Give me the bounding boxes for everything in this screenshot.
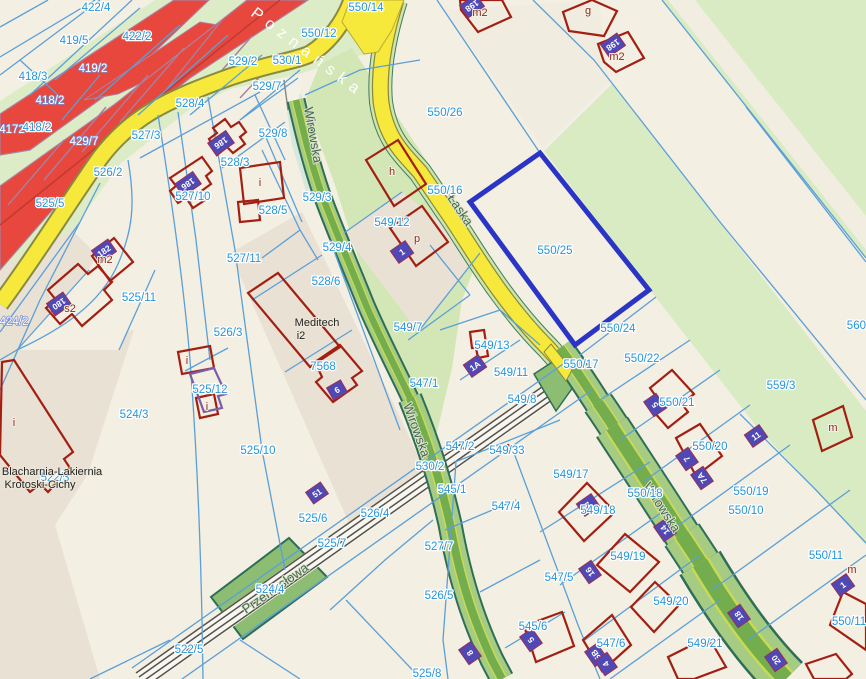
svg-text:550/26: 550/26 [427, 107, 462, 119]
svg-text:549/19: 549/19 [610, 551, 645, 563]
svg-text:419/5: 419/5 [60, 35, 89, 47]
svg-text:m2: m2 [472, 7, 487, 19]
svg-text:550/10: 550/10 [728, 505, 763, 517]
svg-text:549/21: 549/21 [687, 638, 722, 650]
svg-text:547/4: 547/4 [492, 501, 521, 513]
svg-text:550/16: 550/16 [427, 185, 462, 197]
svg-text:527/7: 527/7 [425, 541, 454, 553]
svg-text:549/8: 549/8 [508, 394, 537, 406]
svg-text:527/10: 527/10 [175, 191, 210, 203]
svg-text:7568: 7568 [310, 361, 336, 373]
svg-text:m: m [828, 422, 837, 434]
svg-text:p: p [414, 233, 420, 245]
svg-text:i: i [13, 417, 15, 429]
svg-text:549/13: 549/13 [474, 340, 509, 352]
svg-text:i: i [259, 177, 261, 189]
svg-text:550/18: 550/18 [627, 488, 662, 500]
svg-text:528/5: 528/5 [259, 205, 288, 217]
svg-text:525/11: 525/11 [122, 292, 156, 304]
svg-text:527/11: 527/11 [227, 253, 261, 265]
svg-text:418/2: 418/2 [36, 95, 65, 107]
svg-text:527/3: 527/3 [132, 130, 161, 142]
svg-text:549/17: 549/17 [553, 469, 588, 481]
svg-text:Blacharnia-Lakiernia: Blacharnia-Lakiernia [2, 466, 103, 478]
svg-text:529/4: 529/4 [323, 242, 352, 254]
svg-text:i: i [186, 355, 188, 367]
svg-text:559/3: 559/3 [767, 380, 796, 392]
svg-text:550/24: 550/24 [600, 323, 636, 335]
svg-text:524/3: 524/3 [120, 409, 149, 421]
svg-text:547/1: 547/1 [410, 378, 439, 390]
svg-text:550/22: 550/22 [624, 353, 659, 365]
svg-text:549/11: 549/11 [494, 367, 528, 379]
svg-text:526/4: 526/4 [361, 508, 390, 520]
svg-text:528/3: 528/3 [221, 157, 250, 169]
svg-text:Meditech: Meditech [295, 317, 340, 329]
svg-text:525/10: 525/10 [240, 445, 275, 457]
svg-text:547/5: 547/5 [545, 572, 574, 584]
svg-text:545/1: 545/1 [438, 484, 467, 496]
svg-text:528/6: 528/6 [312, 276, 341, 288]
svg-text:424/2: 424/2 [0, 316, 28, 328]
svg-text:418/3: 418/3 [19, 71, 48, 83]
svg-text:526/3: 526/3 [214, 327, 243, 339]
svg-text:m2: m2 [609, 51, 624, 63]
svg-text:550/11: 550/11 [809, 550, 843, 562]
svg-text:522/5: 522/5 [175, 644, 204, 656]
svg-text:530/2: 530/2 [416, 461, 445, 473]
svg-text:550/14: 550/14 [348, 2, 384, 14]
svg-text:550/19: 550/19 [733, 486, 768, 498]
svg-text:549/18: 549/18 [580, 505, 615, 517]
svg-text:525/6: 525/6 [299, 513, 328, 525]
svg-text:529/7: 529/7 [253, 81, 282, 93]
svg-text:549/7: 549/7 [394, 322, 423, 334]
svg-text:h: h [389, 166, 395, 178]
svg-text:524/4: 524/4 [256, 584, 285, 596]
svg-text:549/20: 549/20 [653, 596, 688, 608]
svg-text:525/8: 525/8 [413, 668, 442, 679]
svg-text:550/21: 550/21 [659, 397, 694, 409]
svg-text:529/8: 529/8 [259, 128, 288, 140]
svg-text:560/: 560/ [847, 320, 866, 332]
svg-text:547/2: 547/2 [446, 441, 475, 453]
svg-text:549/33: 549/33 [489, 445, 524, 457]
svg-text:550/11: 550/11 [832, 616, 866, 628]
svg-text:530/1: 530/1 [273, 55, 302, 67]
svg-text:545/6: 545/6 [519, 621, 548, 633]
svg-text:525/12: 525/12 [192, 384, 227, 396]
svg-text:525/5: 525/5 [36, 198, 65, 210]
svg-text:422/4: 422/4 [82, 2, 111, 14]
svg-text:m: m [847, 564, 856, 576]
svg-text:550/20: 550/20 [692, 441, 727, 453]
svg-text:419/2: 419/2 [79, 63, 108, 75]
svg-text:526/5: 526/5 [425, 590, 454, 602]
svg-text:529/3: 529/3 [303, 192, 332, 204]
svg-text:m2: m2 [97, 254, 112, 266]
svg-text:418/2: 418/2 [23, 122, 52, 134]
svg-text:g: g [585, 5, 591, 17]
svg-text:422/2: 422/2 [123, 31, 152, 43]
svg-text:i2: i2 [297, 330, 306, 342]
svg-text:525/7: 525/7 [318, 538, 347, 550]
svg-text:550/12: 550/12 [301, 28, 336, 40]
svg-text:i: i [206, 401, 208, 413]
svg-text:528/4: 528/4 [176, 98, 205, 110]
svg-text:429/7: 429/7 [70, 136, 99, 148]
svg-text:547/6: 547/6 [597, 638, 626, 650]
svg-text:Krotoski-Cichy: Krotoski-Cichy [5, 479, 76, 491]
svg-text:s2: s2 [64, 303, 76, 315]
svg-text:550/25: 550/25 [537, 245, 572, 257]
svg-text:529/2: 529/2 [229, 56, 258, 68]
svg-text:4172: 4172 [0, 124, 25, 136]
svg-text:526/2: 526/2 [94, 167, 123, 179]
svg-text:549/12: 549/12 [374, 217, 409, 229]
svg-text:550/17: 550/17 [563, 359, 598, 371]
